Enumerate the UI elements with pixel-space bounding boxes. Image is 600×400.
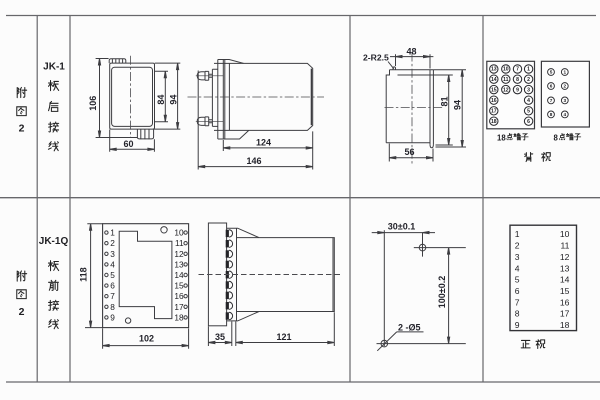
svg-text:8: 8 [515,309,520,319]
svg-text:8: 8 [516,77,519,83]
svg-text:8: 8 [110,302,115,312]
svg-text:JK-1: JK-1 [43,62,65,73]
svg-text:6: 6 [527,119,530,125]
svg-text:8: 8 [554,133,559,142]
svg-text:4: 4 [515,263,520,273]
svg-text:60: 60 [123,139,133,149]
svg-text:12: 12 [174,249,184,259]
svg-text:12: 12 [503,87,509,93]
svg-text:13: 13 [560,263,570,273]
svg-text:84: 84 [156,95,166,105]
svg-text:102: 102 [139,334,154,344]
svg-text:56: 56 [404,147,414,157]
svg-text:15: 15 [491,87,497,93]
svg-text:9: 9 [515,320,520,330]
svg-text:15: 15 [560,286,570,296]
svg-text:2: 2 [19,123,25,135]
svg-text:10: 10 [560,229,570,239]
svg-text:14: 14 [174,270,184,280]
svg-text:17: 17 [560,309,570,319]
svg-text:2: 2 [110,238,115,248]
svg-text:11: 11 [503,77,509,83]
svg-text:4: 4 [110,259,115,269]
svg-text:JK-1Q: JK-1Q [39,236,69,247]
svg-text:10: 10 [174,228,184,238]
svg-text:16: 16 [491,98,497,104]
svg-text:3: 3 [515,252,520,262]
svg-text:10: 10 [503,67,509,73]
svg-text:11: 11 [560,241,569,251]
svg-text:8: 8 [550,112,553,117]
svg-text:2: 2 [19,306,25,318]
svg-text:14: 14 [560,275,570,285]
svg-text:16: 16 [174,291,184,301]
svg-text:12: 12 [560,252,570,262]
svg-text:7: 7 [515,297,520,307]
svg-text:7: 7 [110,291,115,301]
svg-text:2-R2.5: 2-R2.5 [363,53,389,63]
svg-text:3: 3 [527,87,530,93]
svg-text:4: 4 [563,112,566,117]
svg-text:106: 106 [88,96,98,111]
svg-text:13: 13 [491,67,497,73]
svg-text:124: 124 [256,137,271,147]
svg-text:14: 14 [491,77,497,83]
svg-text:1: 1 [527,67,530,73]
svg-text:9: 9 [110,312,115,322]
svg-text:3: 3 [563,98,566,103]
svg-text:121: 121 [276,332,291,342]
svg-text:6: 6 [110,281,115,291]
svg-text:94: 94 [453,100,463,110]
svg-text:18: 18 [497,133,506,142]
svg-text:3: 3 [110,249,115,259]
svg-text:7: 7 [516,67,519,73]
svg-text:5: 5 [550,70,553,75]
svg-text:13: 13 [174,259,184,269]
svg-text:1: 1 [563,70,566,75]
svg-text:30±0.1: 30±0.1 [388,221,415,231]
svg-text:5: 5 [527,109,530,115]
svg-text:4: 4 [527,98,530,104]
svg-text:11: 11 [175,238,184,248]
svg-text:118: 118 [79,267,89,282]
svg-text:17: 17 [491,109,497,115]
svg-text:5: 5 [110,270,115,280]
svg-text:2: 2 [527,77,530,83]
svg-text:100±0.2: 100±0.2 [437,276,447,308]
svg-text:2 -Ø5: 2 -Ø5 [398,323,421,333]
svg-text:17: 17 [174,302,184,312]
svg-text:18: 18 [560,320,570,330]
svg-text:18: 18 [174,312,184,322]
svg-text:1: 1 [110,228,115,238]
svg-text:81: 81 [440,96,450,106]
svg-text:16: 16 [560,297,570,307]
svg-text:2: 2 [515,241,520,251]
svg-text:9: 9 [516,87,519,93]
svg-text:18: 18 [491,119,497,125]
svg-text:6: 6 [515,286,520,296]
svg-text:5: 5 [515,275,520,285]
svg-text:7: 7 [550,98,553,103]
svg-text:35: 35 [215,332,225,342]
svg-text:6: 6 [550,84,553,89]
svg-text:2: 2 [563,84,566,89]
svg-text:48: 48 [406,46,416,56]
svg-text:146: 146 [246,156,261,166]
svg-text:94: 94 [168,95,178,105]
svg-text:1: 1 [515,229,520,239]
svg-text:15: 15 [174,281,184,291]
